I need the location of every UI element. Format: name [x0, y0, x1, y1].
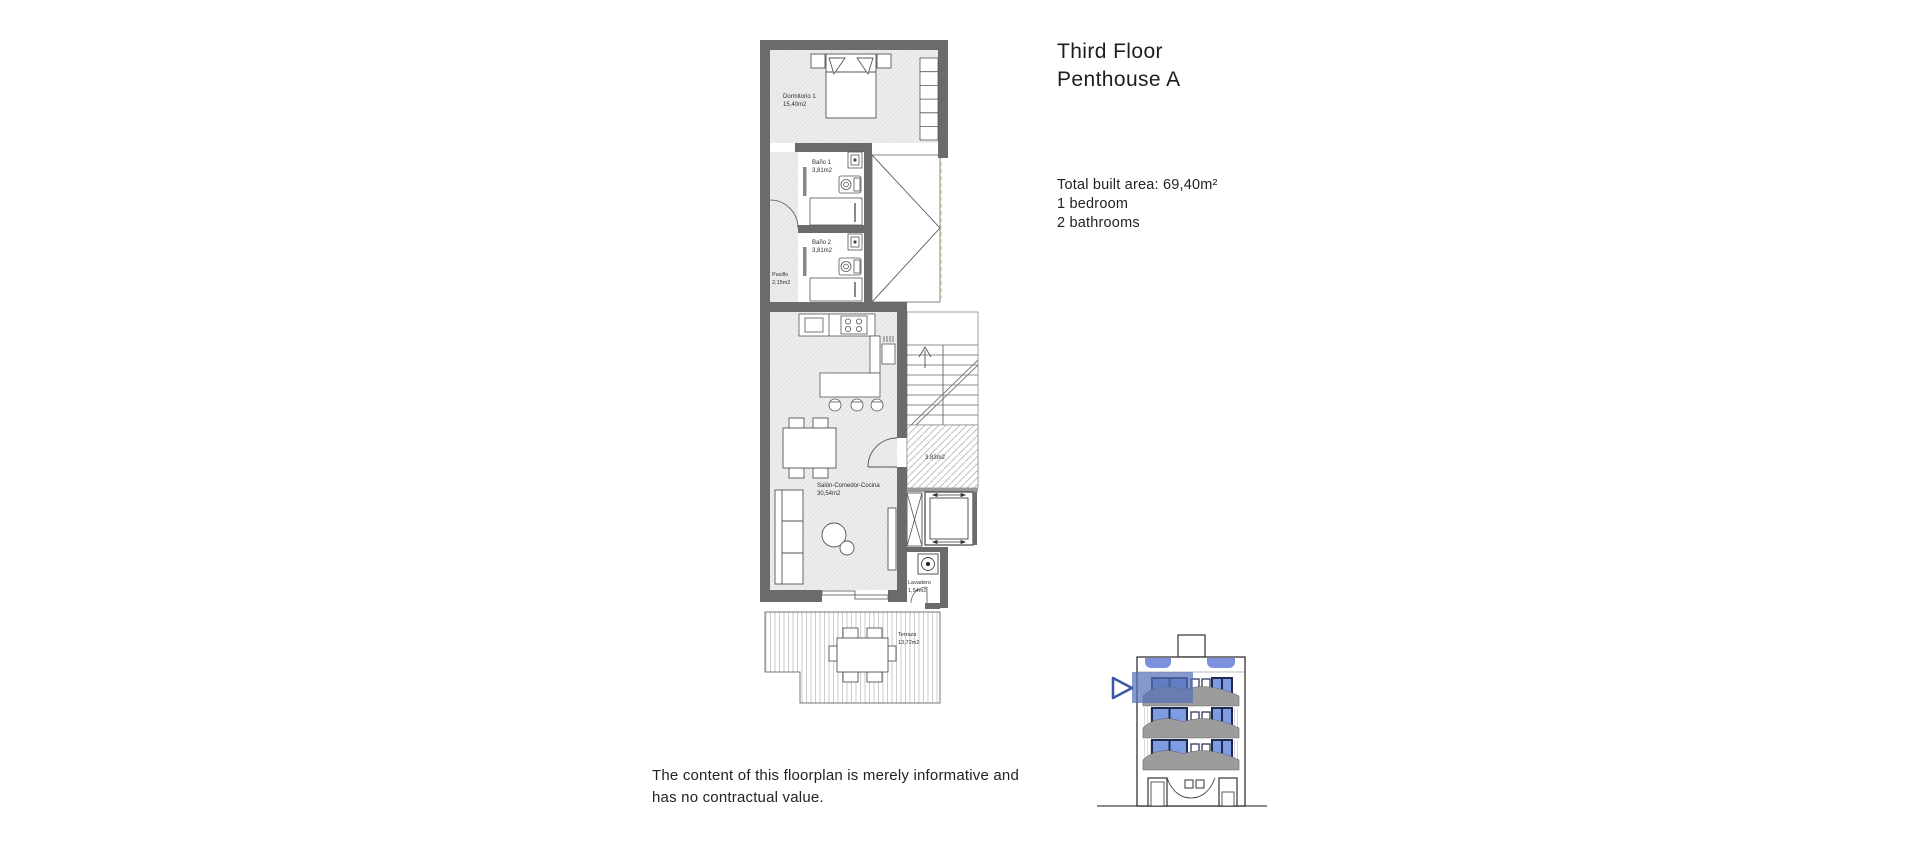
toilet-icon [839, 258, 861, 275]
shower-icon [810, 198, 862, 225]
page-title: Third Floor Penthouse A [1057, 38, 1181, 94]
kitchen-island [870, 336, 880, 373]
laundry-area: 1,54m2 [908, 588, 926, 594]
bathroom-2: Baño 2 3,81m2 [803, 234, 862, 301]
sink-icon [848, 234, 862, 250]
stool-icons [829, 399, 883, 411]
terrace-name: Terraza [898, 632, 917, 638]
roof-structure [1178, 635, 1205, 657]
unit-summary: Total built area: 69,40m² 1 bedroom 2 ba… [1057, 176, 1218, 233]
living-area: 30,54m2 [817, 491, 841, 497]
appliance-icon [882, 344, 895, 364]
hallway-name: Pasillo [772, 272, 788, 278]
stairwell: 3,83m2 [907, 312, 978, 492]
title-line-2: Penthouse A [1057, 66, 1181, 94]
kitchen-sink-icon [805, 318, 823, 332]
cooktop-icon [841, 316, 867, 334]
floorplan-drawing: Terraza 13,72m2 3,83m2 [755, 28, 987, 734]
wardrobe-icon [920, 58, 938, 140]
bathroom1-area: 3,81m2 [812, 168, 833, 174]
bedroom-area: 15,40m2 [783, 102, 807, 108]
bathroom2-area: 3,81m2 [812, 248, 833, 254]
elevator [907, 492, 973, 546]
title-line-1: Third Floor [1057, 38, 1181, 66]
bedroom-count: 1 bedroom [1057, 195, 1218, 214]
void-area [872, 155, 941, 302]
disclaimer-line-1: The content of this floorplan is merely … [652, 765, 1019, 787]
disclaimer: The content of this floorplan is merely … [652, 765, 1019, 809]
terrace-area: 13,72m2 [898, 640, 919, 646]
bathroom-1: Baño 1 3,81m2 [803, 152, 862, 225]
bathroom1-name: Baño 1 [812, 160, 832, 166]
sink-icon [848, 152, 862, 168]
toilet-icon [839, 176, 861, 193]
living-name: Salón-Comedor-Cocina [817, 483, 880, 489]
bedroom-name: Dormitorio 1 [783, 94, 816, 100]
hallway-area: 2,15m2 [772, 280, 790, 286]
laundry-name: Lavadero [908, 580, 931, 586]
page: { "page": {"background": "#ffffff"}, "he… [0, 0, 1920, 850]
terrace: Terraza 13,72m2 [765, 612, 940, 703]
floor-marker-arrow-icon [1113, 678, 1132, 698]
bathroom2-name: Baño 2 [812, 240, 832, 246]
built-area: Total built area: 69,40m² [1057, 176, 1218, 195]
floor-highlight [1132, 672, 1193, 703]
sofa-icon [775, 490, 803, 584]
tv-bench-icon [888, 508, 896, 570]
building-elevation [1095, 622, 1275, 814]
shower-icon [810, 278, 862, 301]
laundry-room: Lavadero 1,54m2 [908, 554, 938, 603]
disclaimer-line-2: has no contractual value. [652, 787, 1019, 809]
landing-area-label: 3,83m2 [925, 455, 946, 461]
bathroom-count: 2 bathrooms [1057, 214, 1218, 233]
sliding-door-icon [822, 591, 888, 599]
